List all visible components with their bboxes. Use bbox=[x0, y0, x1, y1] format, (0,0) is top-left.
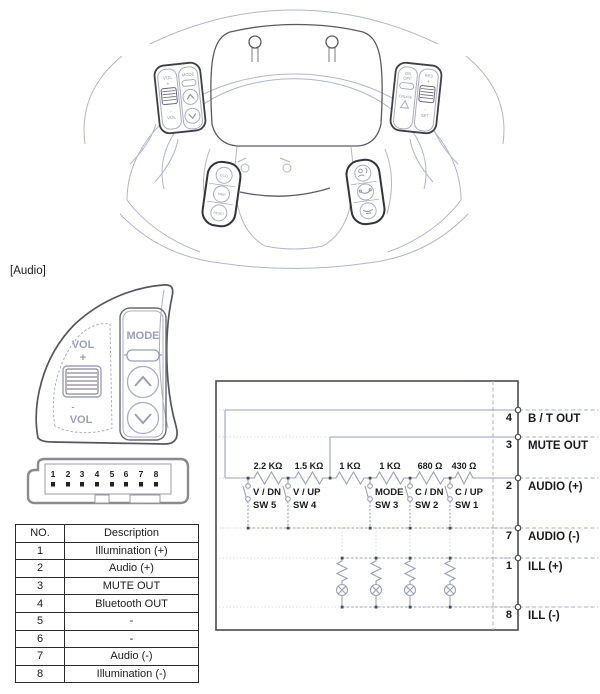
svg-text:3: 3 bbox=[506, 439, 512, 451]
pin-table-header-no: NO. bbox=[16, 525, 65, 543]
lamp-branch bbox=[445, 558, 456, 607]
page: VOL + - VOL MODE ON OFF CRUISE RES + bbox=[0, 0, 600, 694]
svg-text:7: 7 bbox=[506, 530, 512, 542]
svg-text:ILL (-): ILL (-) bbox=[528, 610, 560, 622]
connector-diagram: 1 2 3 4 5 6 7 8 bbox=[25, 455, 197, 511]
svg-text:1: 1 bbox=[51, 469, 56, 479]
audio-detail-diagram: VOL + - VOL MODE bbox=[25, 278, 215, 460]
resistor bbox=[288, 472, 330, 484]
svg-text:7: 7 bbox=[139, 469, 144, 479]
resistor-labels: 2.2 KΩ 1.5 KΩ 1 KΩ 1 KΩ 680 Ω 430 Ω bbox=[254, 461, 477, 471]
bolt-hole bbox=[249, 36, 261, 48]
pin-terminal bbox=[515, 555, 520, 560]
pin-no: 7 bbox=[16, 648, 65, 666]
schematic-pin-numbers: 4 3 2 7 1 8 bbox=[506, 412, 513, 621]
audio-section-label: [Audio] bbox=[10, 265, 46, 277]
resistor bbox=[410, 472, 450, 484]
switch-func-label: V / DN bbox=[253, 487, 281, 498]
table-row: 4Bluetooth OUT bbox=[16, 595, 199, 613]
resistor bbox=[330, 472, 370, 484]
svg-text:680 Ω: 680 Ω bbox=[418, 461, 443, 471]
pin-table: NO. Description 1Illumination (+) 2Audio… bbox=[15, 524, 199, 683]
res-label: RES bbox=[425, 73, 434, 79]
switch-name-label: SW 3 bbox=[375, 500, 398, 511]
schematic-pin-labels: B / T OUT MUTE OUT AUDIO (+) AUDIO (-) I… bbox=[528, 413, 588, 622]
phone-pod bbox=[345, 158, 387, 226]
vol-label: VOL bbox=[163, 75, 173, 81]
pin-description: Bluetooth OUT bbox=[65, 595, 199, 613]
svg-text:ILL (+): ILL (+) bbox=[528, 561, 563, 573]
table-row: 2Audio (+) bbox=[16, 560, 199, 578]
trim-seam bbox=[240, 188, 330, 196]
switch-name-label: SW 1 bbox=[455, 500, 479, 511]
resistor bbox=[370, 472, 410, 484]
set-label: SET bbox=[421, 113, 430, 119]
pin-description: MUTE OUT bbox=[65, 577, 199, 595]
svg-text:AUDIO (-): AUDIO (-) bbox=[528, 531, 580, 543]
pin-terminal bbox=[515, 525, 520, 530]
svg-text:2.2 KΩ: 2.2 KΩ bbox=[254, 461, 283, 471]
svg-text:MUTE OUT: MUTE OUT bbox=[528, 440, 588, 452]
svg-text:1.5 KΩ: 1.5 KΩ bbox=[295, 461, 324, 471]
svg-text:2: 2 bbox=[506, 480, 512, 492]
pin-description: - bbox=[65, 630, 199, 648]
switch-name-label: SW 5 bbox=[253, 500, 277, 511]
resistor bbox=[248, 472, 288, 484]
wheel-center-opening bbox=[211, 25, 382, 147]
pin-description: - bbox=[65, 612, 199, 630]
switch-func-label: C / DN bbox=[415, 487, 444, 498]
wheel-flourish bbox=[84, 56, 122, 144]
pin-table-header-desc: Description bbox=[65, 525, 199, 543]
svg-text:6: 6 bbox=[124, 469, 129, 479]
pin-terminal bbox=[515, 407, 520, 412]
svg-text:430 Ω: 430 Ω bbox=[452, 461, 477, 471]
mode-label: MODE bbox=[127, 330, 160, 342]
switch-func-label: C / UP bbox=[455, 487, 484, 498]
table-row: 1Illumination (+) bbox=[16, 542, 199, 560]
svg-text:1: 1 bbox=[506, 560, 512, 572]
svg-text:3: 3 bbox=[80, 469, 85, 479]
vol-up-label: VOL bbox=[72, 339, 95, 351]
svg-text:2: 2 bbox=[66, 469, 71, 479]
svg-text:1 KΩ: 1 KΩ bbox=[379, 461, 400, 471]
pin-description: Illumination (-) bbox=[65, 665, 199, 683]
svg-text:8: 8 bbox=[154, 469, 159, 479]
cruise-off-label: OFF bbox=[403, 76, 412, 82]
pin-no: 6 bbox=[16, 630, 65, 648]
switch-name-label: SW 2 bbox=[415, 500, 438, 511]
vol-minus-sign: - bbox=[72, 402, 75, 412]
pin-terminal bbox=[515, 604, 520, 609]
svg-text:B / T OUT: B / T OUT bbox=[528, 413, 580, 425]
cruise-cluster: ON OFF CRUISE RES + - SET bbox=[390, 62, 443, 134]
pin-description: Audio (-) bbox=[65, 648, 199, 666]
circuit-schematic: V / DN SW 5 V / UP SW 4 MODE SW 3 C / DN… bbox=[215, 378, 600, 638]
table-row: 8Illumination (-) bbox=[16, 665, 199, 683]
airbag-cover bbox=[235, 147, 353, 249]
switches: V / DN SW 5 V / UP SW 4 MODE SW 3 C / DN… bbox=[243, 478, 484, 528]
trip-pod: ECO TRIP RESET bbox=[201, 160, 243, 228]
vol-label: VOL bbox=[167, 114, 177, 120]
bolt-hole bbox=[326, 36, 338, 48]
pin-terminal bbox=[515, 475, 520, 480]
switch-func-label: MODE bbox=[375, 487, 404, 498]
illumination-branches bbox=[337, 558, 456, 607]
table-row: 5- bbox=[16, 612, 199, 630]
connector-latch bbox=[130, 495, 160, 503]
table-row: 3MUTE OUT bbox=[16, 577, 199, 595]
pin-no: 4 bbox=[16, 595, 65, 613]
switch-name-label: SW 4 bbox=[293, 500, 317, 511]
table-row: 7Audio (-) bbox=[16, 648, 199, 666]
pin-description: Audio (+) bbox=[65, 560, 199, 578]
pin-no: 3 bbox=[16, 577, 65, 595]
vol-down-label: VOL bbox=[70, 414, 93, 426]
lamp-branch bbox=[337, 558, 348, 607]
audio-cluster: VOL + - VOL MODE bbox=[154, 62, 207, 134]
table-row: 6- bbox=[16, 630, 199, 648]
switch-func-label: V / UP bbox=[293, 487, 321, 498]
pin-no: 5 bbox=[16, 612, 65, 630]
svg-text:AUDIO (+): AUDIO (+) bbox=[528, 481, 583, 493]
steering-wheel-diagram: VOL + - VOL MODE ON OFF CRUISE RES + bbox=[60, 4, 530, 270]
svg-text:4: 4 bbox=[506, 412, 513, 424]
pin-no: 8 bbox=[16, 665, 65, 683]
svg-text:1 KΩ: 1 KΩ bbox=[339, 461, 360, 471]
audio-switch-bezel bbox=[36, 285, 177, 444]
connector-latch bbox=[95, 495, 109, 503]
svg-text:5: 5 bbox=[110, 469, 115, 479]
svg-text:4: 4 bbox=[95, 469, 100, 479]
svg-text:8: 8 bbox=[506, 609, 512, 621]
lamp-branch bbox=[371, 558, 382, 607]
lamp-branch bbox=[405, 558, 416, 607]
pin-no: 2 bbox=[16, 560, 65, 578]
pin-no: 1 bbox=[16, 542, 65, 560]
vol-plus-sign: + bbox=[80, 352, 86, 364]
pin-description: Illumination (+) bbox=[65, 542, 199, 560]
pin-terminal bbox=[515, 434, 520, 439]
pin-table-header-row: NO. Description bbox=[16, 525, 199, 543]
